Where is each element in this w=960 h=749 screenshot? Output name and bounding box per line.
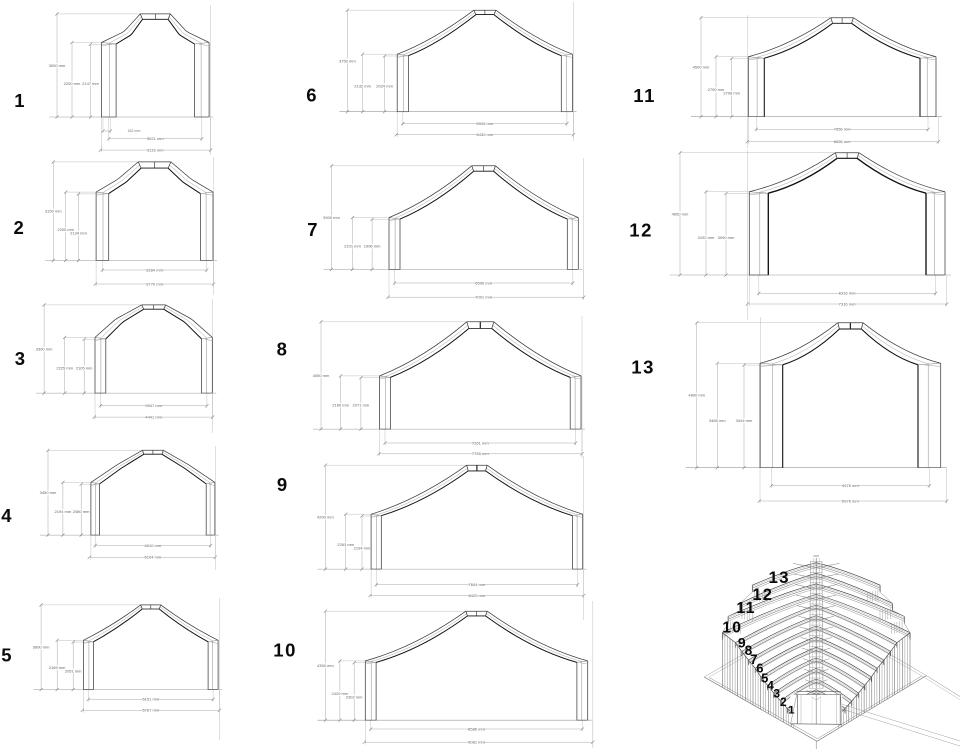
svg-text:2080 mm: 2080 mm <box>73 509 90 514</box>
svg-text:9081 mm: 9081 mm <box>468 740 485 745</box>
svg-text:3284 mm: 3284 mm <box>146 267 163 272</box>
svg-text:3750 mm: 3750 mm <box>339 58 356 63</box>
svg-text:5767 mm: 5767 mm <box>142 708 159 713</box>
svg-text:3450 mm: 3450 mm <box>40 490 57 495</box>
svg-text:3444 mm: 3444 mm <box>736 418 753 423</box>
svg-text:6430 mm: 6430 mm <box>477 132 494 137</box>
svg-text:3: 3 <box>15 348 25 369</box>
svg-text:2071 mm: 2071 mm <box>353 403 370 408</box>
svg-text:1: 1 <box>788 705 795 717</box>
svg-text:2200 mm: 2200 mm <box>64 81 81 86</box>
svg-text:10: 10 <box>273 640 297 661</box>
svg-text:4976 mm: 4976 mm <box>842 483 859 488</box>
svg-text:3485 mm: 3485 mm <box>709 418 726 423</box>
svg-text:11: 11 <box>633 85 656 106</box>
svg-text:2169 mm: 2169 mm <box>49 665 66 670</box>
svg-text:11: 11 <box>736 600 755 617</box>
svg-text:2225 mm: 2225 mm <box>56 366 73 371</box>
svg-text:7656 mm: 7656 mm <box>834 127 851 132</box>
svg-text:7: 7 <box>307 219 317 240</box>
svg-text:7316 mm: 7316 mm <box>839 301 856 306</box>
svg-text:162 mm: 162 mm <box>128 129 141 133</box>
svg-text:3947 mm: 3947 mm <box>145 403 162 408</box>
svg-text:2051 mm: 2051 mm <box>65 668 82 673</box>
svg-text:5905 mm: 5905 mm <box>477 121 494 126</box>
svg-text:8586 mm: 8586 mm <box>468 726 485 731</box>
svg-text:4: 4 <box>1 505 12 526</box>
svg-text:2147 mm: 2147 mm <box>82 81 99 86</box>
svg-text:2105 mm: 2105 mm <box>76 366 93 371</box>
svg-text:2132 mm: 2132 mm <box>354 83 371 88</box>
svg-text:7001 mm: 7001 mm <box>475 295 492 300</box>
svg-text:5151 mm: 5151 mm <box>142 697 159 702</box>
svg-text:2302 mm: 2302 mm <box>346 695 363 700</box>
svg-text:3770 mm: 3770 mm <box>146 281 163 286</box>
svg-text:9: 9 <box>277 474 287 495</box>
svg-text:13: 13 <box>631 356 655 377</box>
svg-text:6316 mm: 6316 mm <box>839 291 856 296</box>
svg-text:6: 6 <box>306 85 316 106</box>
svg-text:2134 mm: 2134 mm <box>70 231 87 236</box>
svg-text:3000 mm: 3000 mm <box>49 63 66 68</box>
svg-text:4050 mm: 4050 mm <box>313 373 330 378</box>
svg-text:2194 mm: 2194 mm <box>55 509 72 514</box>
svg-text:4800 mm: 4800 mm <box>688 393 705 398</box>
svg-text:3192 mm: 3192 mm <box>698 235 715 240</box>
svg-text:4200 mm: 4200 mm <box>317 515 334 520</box>
svg-text:4500 mm: 4500 mm <box>693 65 710 70</box>
svg-text:4610 mm: 4610 mm <box>145 543 162 548</box>
svg-text:3116 mm: 3116 mm <box>147 148 164 153</box>
svg-text:5976 mm: 5976 mm <box>842 498 859 503</box>
svg-text:2: 2 <box>780 696 787 709</box>
svg-text:8420 mm: 8420 mm <box>469 593 486 598</box>
svg-text:1996 mm: 1996 mm <box>364 244 381 249</box>
svg-text:8656 mm: 8656 mm <box>834 139 851 144</box>
svg-text:12: 12 <box>629 220 653 241</box>
svg-text:1: 1 <box>14 90 24 111</box>
svg-text:5104 mm: 5104 mm <box>145 555 162 560</box>
svg-text:7261 mm: 7261 mm <box>472 440 489 445</box>
svg-text:4650 mm: 4650 mm <box>672 211 689 216</box>
svg-text:2: 2 <box>14 217 24 238</box>
svg-text:3600 mm: 3600 mm <box>33 645 50 650</box>
svg-text:4441 mm: 4441 mm <box>145 415 162 420</box>
svg-text:8: 8 <box>277 339 287 360</box>
svg-text:2160 mm: 2160 mm <box>332 403 349 408</box>
svg-text:2194 mm: 2194 mm <box>354 545 371 550</box>
svg-text:2708 mm: 2708 mm <box>723 91 740 96</box>
svg-text:7604 mm: 7604 mm <box>469 582 486 587</box>
svg-text:3300 mm: 3300 mm <box>36 346 53 351</box>
svg-text:3900 mm: 3900 mm <box>323 215 340 220</box>
svg-text:5: 5 <box>1 645 11 666</box>
svg-text:2024 mm: 2024 mm <box>376 83 393 88</box>
svg-text:6506 mm: 6506 mm <box>475 280 492 285</box>
svg-text:7755 mm: 7755 mm <box>472 451 489 456</box>
svg-text:2263 mm: 2263 mm <box>337 542 354 547</box>
svg-text:2101 mm: 2101 mm <box>344 244 361 249</box>
svg-text:3021 mm: 3021 mm <box>147 136 164 141</box>
svg-text:3090 mm: 3090 mm <box>718 235 735 240</box>
svg-text:13: 13 <box>769 568 790 587</box>
svg-text:3150 mm: 3150 mm <box>45 209 62 214</box>
svg-text:4350 mm: 4350 mm <box>317 663 334 668</box>
